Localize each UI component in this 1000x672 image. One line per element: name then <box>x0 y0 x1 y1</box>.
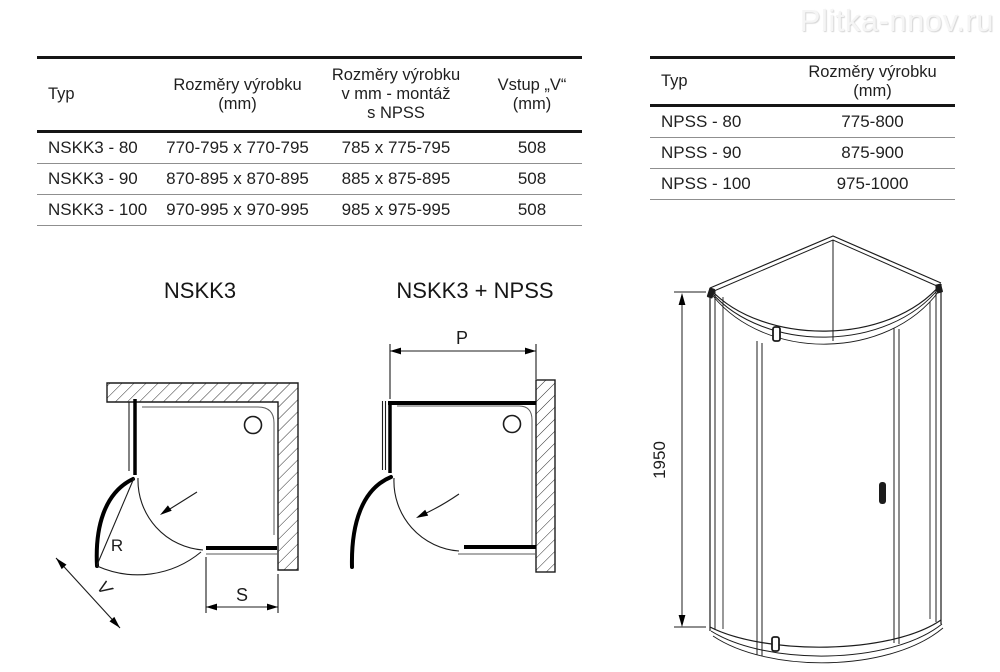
hinge-bottom <box>772 637 779 651</box>
swing-arrow-head <box>160 505 172 515</box>
technical-drawings: R S V P <box>0 0 1000 672</box>
door-handle <box>879 482 886 504</box>
top-rim <box>710 284 941 331</box>
drain-icon <box>245 417 262 434</box>
arrow-head <box>267 604 278 611</box>
door-open <box>352 477 391 567</box>
top-edge-back <box>710 236 941 288</box>
nskk3-plan-drawing: R S V <box>56 383 298 628</box>
enclosure-3d-drawing: 1950 <box>650 236 943 663</box>
hinge-top <box>773 327 780 341</box>
swing-arrow-head <box>416 510 428 518</box>
door-swing-path <box>97 552 201 575</box>
arrow-head <box>525 348 536 355</box>
dim-label-r: R <box>111 536 123 555</box>
wall-section <box>536 380 555 572</box>
dim-label-s: S <box>236 585 248 605</box>
nskk3-npss-plan-drawing: P <box>352 328 555 572</box>
drain-icon <box>504 416 521 433</box>
top-rim <box>713 291 939 344</box>
arrow-head <box>679 615 686 627</box>
arrow-head <box>206 604 217 611</box>
swing-arrow-curve <box>422 494 459 515</box>
arrow-head <box>390 348 401 355</box>
arrow-head <box>679 293 686 305</box>
door-closed-arc <box>138 478 203 550</box>
dim-line-v <box>56 558 120 628</box>
bottom-rim <box>713 628 943 663</box>
dim-label-v: V <box>93 577 117 601</box>
dim-label-height: 1950 <box>650 441 669 479</box>
top-edge-back-inner <box>714 240 937 291</box>
dim-label-p: P <box>456 328 468 348</box>
